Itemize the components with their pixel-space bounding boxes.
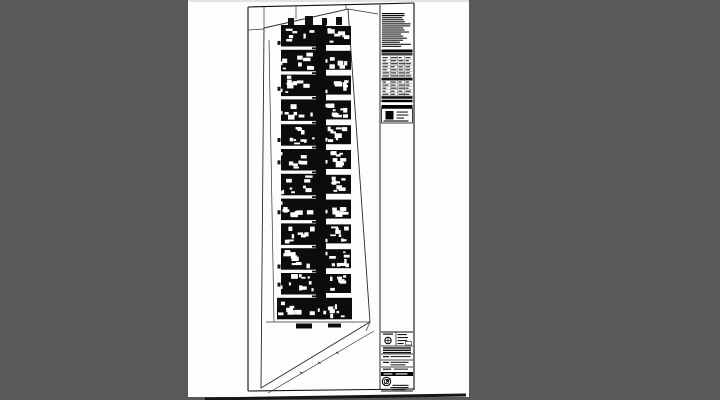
floor-plan-drawing (0, 0, 720, 400)
approval-logo-stamp (382, 377, 390, 385)
floor-plan-stack (277, 16, 352, 329)
notes-column (382, 13, 413, 123)
scan-edge-bar (205, 394, 466, 400)
viewer-canvas (0, 0, 720, 400)
architect-seal-stamp (385, 337, 391, 343)
